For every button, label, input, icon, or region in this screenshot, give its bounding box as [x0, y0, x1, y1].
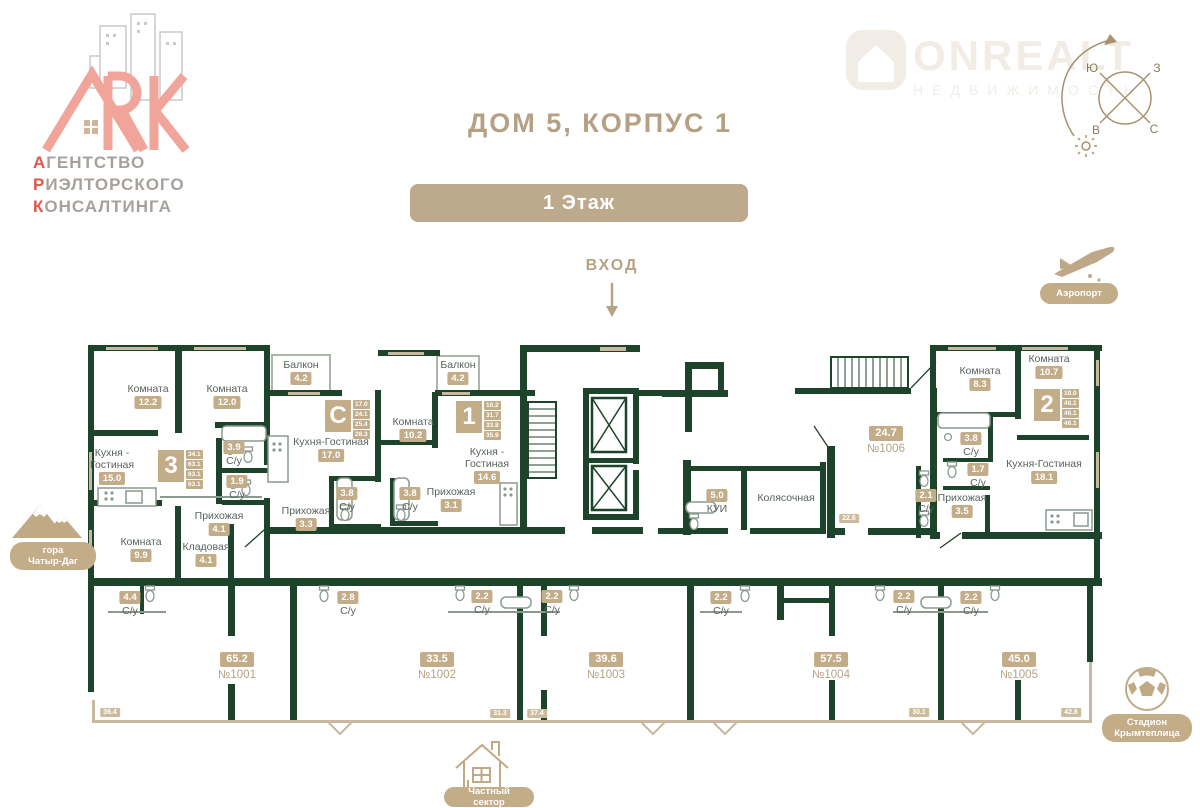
room-name: С/у — [918, 503, 934, 515]
apartment-areas: 34.1 63.1 63.1 63.1 — [186, 450, 203, 489]
apartment-type: С — [325, 400, 351, 432]
ark-logo-line: РИЭЛТОРСКОГО — [33, 174, 185, 196]
unit-area-chip: 24.7 — [869, 426, 902, 441]
unit-area-chip: 45.0 — [1002, 652, 1035, 667]
room-label: Комната10.7 — [1028, 353, 1069, 379]
unit-number: №1001 — [218, 669, 256, 681]
room-name: Комната — [1028, 353, 1069, 365]
room-label: С/у2.2 — [541, 590, 562, 616]
room-area-chip: 4.4 — [119, 591, 140, 604]
ark-logo-rest: ИЭЛТОРСКОГО — [45, 175, 184, 194]
bathtub-icon — [921, 597, 951, 608]
room-name: Кухня-Гостиная — [1006, 458, 1082, 470]
room-name: Комната — [206, 383, 247, 395]
room-name: Прихожая — [195, 510, 244, 522]
unit-area-chip: 57.5 — [814, 652, 847, 667]
room-label: С/у1.9 — [226, 475, 247, 501]
room-area-chip: 3.9 — [223, 441, 244, 454]
room-area-chip: 1.7 — [967, 463, 988, 476]
landmark-private-sector-label: Частный сектор — [444, 787, 534, 807]
room-label: Кухня-Гостиная18.1 — [1006, 458, 1082, 484]
room-label: С/у2.2 — [710, 591, 731, 617]
unit-number: №1002 — [418, 669, 456, 681]
room-label: С/у3.8 — [336, 487, 357, 513]
apartment-area-chip: 31.7 — [484, 411, 501, 420]
floorplan-page: ONREALT НЕДВИЖИМОСТЬ — [0, 0, 1200, 798]
unit-area-chip: 33.5 — [420, 652, 453, 667]
room-area-chip: 3.5 — [951, 505, 972, 518]
room-label: С/у2.2 — [471, 590, 492, 616]
ark-logo-rest: ОНСАЛТИНГА — [44, 197, 172, 216]
room-label: С/у3.8 — [399, 487, 420, 513]
room-area-chip: 2.2 — [471, 590, 492, 603]
room-name: Прихожая — [282, 505, 331, 517]
ark-logo-initial: А — [33, 153, 46, 172]
unit-number: №1004 — [812, 669, 850, 681]
apartment-areas: 19.0 46.1 46.1 46.1 — [1062, 389, 1079, 428]
room-name: С/у — [122, 605, 138, 617]
room-name: С/у — [229, 489, 245, 501]
apartment-badge: 1 10.2 31.7 33.8 35.9 — [456, 401, 501, 440]
unit-label: 65.2№1001 — [218, 652, 256, 681]
room-name: С/у — [340, 605, 356, 617]
room-label: Комната10.2 — [392, 416, 433, 442]
apartment-area-chip: 34.1 — [186, 450, 203, 459]
room-label: С/у2.2 — [893, 590, 914, 616]
apartment-area-chip: 46.1 — [1062, 409, 1079, 418]
room-label: Кухня-Гостиная17.0 — [293, 436, 369, 462]
room-area-chip: 2.1 — [915, 489, 936, 502]
area-tag: 37.4 — [527, 709, 547, 718]
page-title: ДОМ 5, КОРПУС 1 — [0, 108, 1200, 139]
apartment-type: 2 — [1034, 389, 1060, 421]
apartment-area-chip: 46.1 — [1062, 419, 1079, 428]
house-icon — [456, 742, 508, 789]
unit-number: №1005 — [1000, 669, 1038, 681]
area-tag: 22.6 — [839, 514, 859, 523]
room-label: Балкон4.2 — [283, 359, 318, 385]
bathtub-icon — [938, 413, 990, 428]
stairs-entrance — [831, 357, 936, 388]
ark-logo-text: АГЕНТСТВО РИЭЛТОРСКОГО КОНСАЛТИНГА — [33, 152, 185, 218]
room-area-chip: 18.1 — [1031, 471, 1058, 484]
room-name: КУИ — [707, 503, 727, 515]
room-area-chip: 10.2 — [400, 429, 427, 442]
room-label: Прихожая3.5 — [938, 492, 987, 518]
room-area-chip: 4.1 — [208, 523, 229, 536]
stairs-internal — [528, 402, 556, 478]
kitchen-sink-icon — [1074, 513, 1088, 526]
room-area-chip: 3.3 — [295, 518, 316, 531]
apartment-badge: 2 19.0 46.1 46.1 46.1 — [1034, 389, 1079, 428]
apartment-area-chip: 35.9 — [484, 431, 501, 440]
unit-number: №1006 — [867, 443, 905, 455]
room-area-chip: 8.3 — [969, 378, 990, 391]
kitchen-sink-icon — [126, 491, 142, 503]
unit-area-chip: 39.6 — [589, 652, 622, 667]
apartment-area-chip: 19.0 — [1062, 389, 1079, 398]
room-name: Балкон — [283, 359, 318, 371]
room-name: С/у — [963, 605, 979, 617]
room-area-chip: 5.0 — [706, 489, 727, 502]
area-tag: 42.8 — [1061, 708, 1081, 717]
landmark-stadium-label: Стадион Крымтеплица — [1102, 714, 1192, 742]
room-label: Комната9.9 — [120, 536, 161, 562]
room-label: Комната12.0 — [206, 383, 247, 409]
room-area-chip: 12.0 — [214, 396, 241, 409]
apartment-area-chip: 63.1 — [186, 470, 203, 479]
landmark-mountain-label: гора Чатыр-Даг — [10, 542, 96, 570]
room-label: С/у1.7 — [967, 463, 988, 489]
room-label: Колясочная — [757, 492, 814, 504]
entrance-notches — [328, 722, 985, 734]
room-label: Балкон4.2 — [440, 359, 475, 385]
room-name: Комната — [392, 416, 433, 428]
room-area-chip: 3.8 — [960, 432, 981, 445]
compass-label-nw: З — [1153, 61, 1160, 75]
apartment-area-chip: 10.2 — [484, 401, 501, 410]
area-tag: 36.4 — [100, 708, 120, 717]
floor-badge: 1 Этаж — [410, 184, 748, 222]
area-tag: 31.3 — [490, 709, 510, 718]
room-name: С/у — [963, 446, 979, 458]
unit-label: 57.5№1004 — [812, 652, 850, 681]
room-name: Кухня - Гостиная — [90, 447, 134, 471]
room-area-chip: 9.9 — [130, 549, 151, 562]
mountains-icon — [12, 505, 82, 538]
apartment-area-chip: 17.0 — [353, 400, 370, 409]
room-label: С/у2.1 — [915, 489, 936, 515]
room-label: С/у3.8 — [960, 432, 981, 458]
area-tag: 30.1 — [909, 708, 929, 717]
room-label: Кухня - Гостиная14.6 — [465, 446, 509, 484]
room-label: С/у3.9 — [223, 441, 244, 467]
unit-label: 39.6№1003 — [587, 652, 625, 681]
apartment-area-chip: 24.1 — [353, 410, 370, 419]
apartment-badge: 3 34.1 63.1 63.1 63.1 — [158, 450, 203, 489]
room-area-chip: 10.7 — [1036, 366, 1063, 379]
room-name: С/у — [474, 604, 490, 616]
room-label: С/у2.2 — [960, 591, 981, 617]
room-name: С/у — [226, 455, 242, 467]
apartment-area-chip: 33.8 — [484, 421, 501, 430]
room-name: Кухня-Гостиная — [293, 436, 369, 448]
room-name: Комната — [120, 536, 161, 548]
apartment-type: 3 — [158, 450, 184, 482]
room-area-chip: 17.0 — [318, 449, 345, 462]
room-name: Прихожая — [427, 486, 476, 498]
room-area-chip: 3.8 — [399, 487, 420, 500]
room-label: Прихожая3.1 — [427, 486, 476, 512]
apartment-area-chip: 25.4 — [353, 420, 370, 429]
apartment-area-chip: 63.1 — [186, 480, 203, 489]
unit-label: 45.0№1005 — [1000, 652, 1038, 681]
room-area-chip: 4.1 — [195, 554, 216, 567]
ark-logo-rest: ГЕНТСТВО — [46, 153, 145, 172]
apartment-badge: С 17.0 24.1 25.4 28.3 — [325, 400, 370, 439]
unit-label: 33.5№1002 — [418, 652, 456, 681]
elevator-shafts — [592, 398, 626, 510]
room-name: С/у — [544, 604, 560, 616]
room-area-chip: 3.1 — [440, 499, 461, 512]
room-area-chip: 3.8 — [336, 487, 357, 500]
unit-area-chip: 65.2 — [220, 652, 253, 667]
room-area-chip: 15.0 — [99, 472, 126, 485]
room-area-chip: 2.8 — [337, 591, 358, 604]
room-name: Кладовая — [182, 541, 229, 553]
room-name: С/у — [713, 605, 729, 617]
room-name: Комната — [959, 365, 1000, 377]
room-name: Балкон — [440, 359, 475, 371]
room-area-chip: 1.9 — [226, 475, 247, 488]
airplane-takeoff-icon — [1054, 247, 1114, 282]
room-label: С/у4.4 — [119, 591, 140, 617]
unit-number: №1003 — [587, 669, 625, 681]
room-name: Прихожая — [938, 492, 987, 504]
compass-label-sw: Ю — [1086, 61, 1098, 75]
room-name: С/у — [402, 501, 418, 513]
apartment-area-chip: 63.1 — [186, 460, 203, 469]
room-label: Комната12.2 — [127, 383, 168, 409]
room-name: Колясочная — [757, 492, 814, 504]
apartment-areas: 10.2 31.7 33.8 35.9 — [484, 401, 501, 440]
room-area-chip: 2.2 — [893, 590, 914, 603]
room-area-chip: 2.2 — [710, 591, 731, 604]
apartment-type: 1 — [456, 401, 482, 433]
ark-logo-line: КОНСАЛТИНГА — [33, 196, 185, 218]
room-name: С/у — [896, 604, 912, 616]
unit-label: 24.7№1006 — [867, 426, 905, 455]
entrance-arrow-icon — [606, 283, 618, 317]
room-name: Кухня - Гостиная — [465, 446, 509, 470]
compass-arrowhead — [1104, 34, 1117, 45]
room-label: Прихожая3.3 — [282, 505, 331, 531]
room-name: Комната — [127, 383, 168, 395]
room-label: КУИ5.0 — [706, 489, 727, 515]
ark-logo-line: АГЕНТСТВО — [33, 152, 185, 174]
onrealt-house-icon — [846, 30, 906, 90]
apartment-area-chip: 46.1 — [1062, 399, 1079, 408]
room-label: Кладовая4.1 — [182, 541, 229, 567]
kitchen-counter-icon — [500, 483, 517, 525]
room-area-chip: 14.6 — [474, 471, 501, 484]
landmark-airport-label: Аэропорт — [1040, 283, 1118, 304]
apartment-areas: 17.0 24.1 25.4 28.3 — [353, 400, 370, 439]
room-name: С/у — [339, 501, 355, 513]
ark-logo-initial: Р — [33, 175, 45, 194]
room-label: Прихожая4.1 — [195, 510, 244, 536]
room-area-chip: 2.2 — [960, 591, 981, 604]
room-area-chip: 12.2 — [135, 396, 162, 409]
room-label: С/у2.8 — [337, 591, 358, 617]
room-label: Кухня - Гостиная15.0 — [90, 447, 134, 485]
kitchen-counter-icon — [268, 436, 288, 482]
soccer-ball-icon — [1126, 668, 1168, 710]
bathtub-icon — [222, 426, 266, 441]
room-area-chip: 4.2 — [447, 372, 468, 385]
room-area-chip: 4.2 — [290, 372, 311, 385]
bathtub-icon — [501, 597, 531, 608]
room-name: С/у — [970, 477, 986, 489]
ark-logo-initial: К — [33, 197, 44, 216]
room-label: Комната8.3 — [959, 365, 1000, 391]
room-area-chip: 2.2 — [541, 590, 562, 603]
entrance-label: ВХОД — [562, 257, 662, 275]
